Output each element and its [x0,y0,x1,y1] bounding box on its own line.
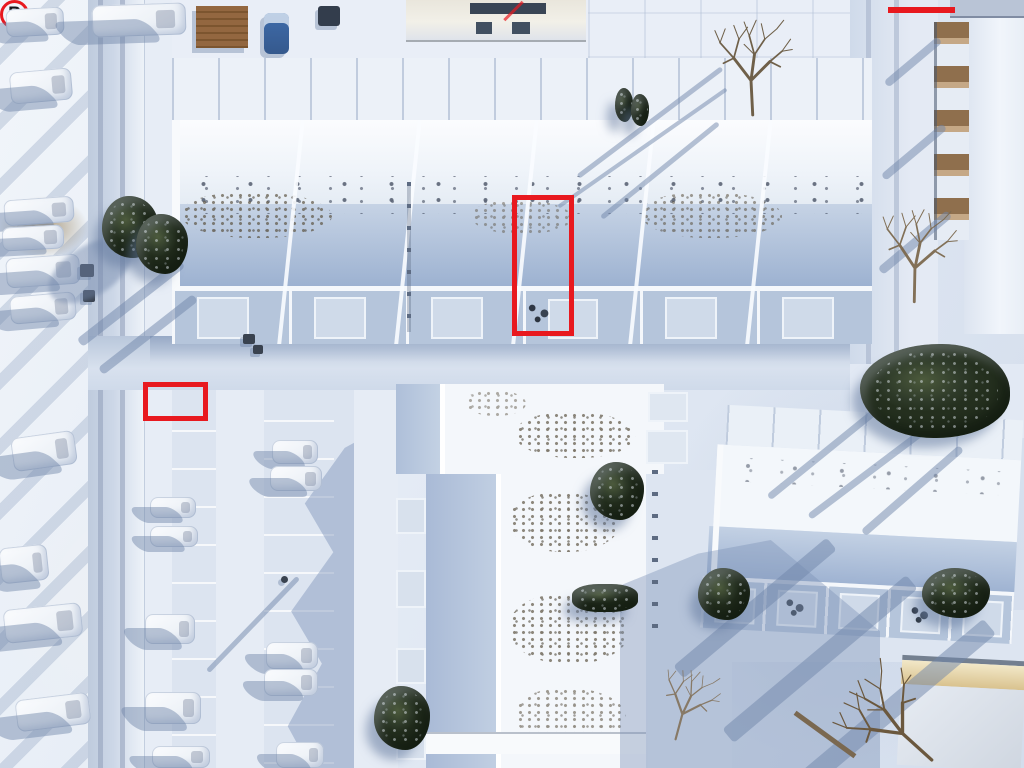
patio [646,430,688,464]
bare-tree [868,161,964,344]
trash-bin [243,334,255,344]
hedge [572,584,638,612]
aerial-photo: P [0,0,1024,768]
patio [782,297,834,339]
blue-vehicle [264,13,289,54]
parked-car [145,692,201,724]
gable-strip [426,732,646,754]
unit-highlight-box [512,195,574,336]
parked-car [1,224,64,251]
patio [648,392,688,422]
patio [197,297,249,339]
solar-panel [470,3,546,14]
parked-car [272,440,318,464]
bush [374,686,430,750]
wood-deck [196,6,248,48]
parked-car [152,746,210,768]
parked-car [145,614,195,644]
gable-seam [440,384,445,474]
parked-car [150,526,198,547]
small-conifer [615,88,633,122]
parked-car [264,669,318,696]
small-conifer [631,94,649,126]
patio [314,297,366,339]
parked-car [3,196,75,227]
skylight [512,22,530,34]
roof-debris [182,192,332,238]
ridge-line [496,474,501,768]
patio [396,648,426,684]
roof-debris [516,412,636,458]
skylight [476,22,492,34]
roof-shaded-slope [396,384,442,474]
conifer-tree [698,568,750,620]
parked-car [91,2,186,37]
conifer-tree [860,344,1010,438]
fence-line [407,182,411,332]
parked-car [150,497,196,518]
roof-shaded-slope [426,474,500,768]
roof-debris [466,390,526,416]
patio [396,570,426,608]
no-parking-annotation-box [143,382,208,421]
light-pole-base [281,576,288,583]
west-parking-strip [0,0,90,768]
walkway-fence-posts [652,470,658,632]
hot-tub [318,6,340,26]
snow-covered-bush [590,462,644,520]
parking-aisle [216,390,264,768]
parked-car [266,642,318,669]
parked-car [0,544,50,585]
parked-car [276,742,324,768]
parked-car [270,466,322,491]
roof-edge [950,0,1024,18]
patio [431,297,483,339]
patio [665,297,717,339]
conifer-tree [136,214,188,274]
parked-car [9,67,74,104]
patio [396,498,426,534]
bare-tree [708,8,794,122]
conifer-tree [922,568,990,618]
red-marker-line [888,7,955,13]
roof [964,16,1024,334]
trash-bin [253,345,263,354]
